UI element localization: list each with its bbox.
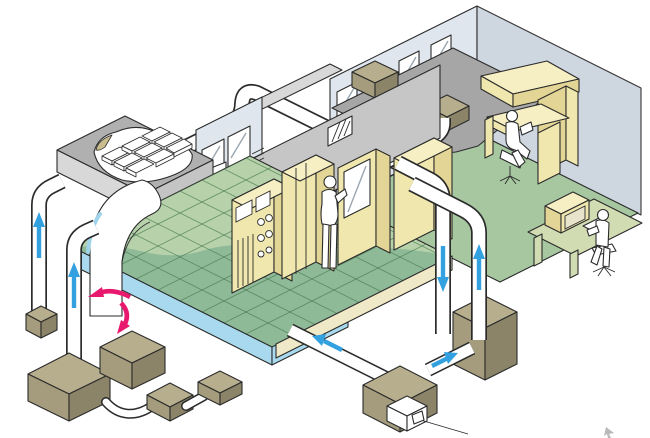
desk-leg-panel [485, 116, 493, 158]
cursor-artifact [604, 427, 614, 438]
operator-leg [603, 247, 610, 267]
control-desk-leg [534, 234, 542, 266]
pump-unit-small [26, 306, 57, 338]
standing-worker-head [324, 176, 336, 188]
standing-worker-leg [330, 224, 337, 268]
operator-body [596, 220, 609, 247]
seated-worker-head [507, 111, 518, 122]
pump-unit-large [28, 353, 110, 421]
standing-worker-leg [322, 224, 329, 268]
facility-isometric-illustration: Isometric cutaway illustration of a swim… [0, 0, 650, 438]
connector-pipe-1 [106, 402, 152, 414]
pool-riser-duct-1 [39, 181, 62, 318]
control-desk-leg [570, 250, 578, 278]
operator-head [598, 210, 609, 221]
illustration-stage: Isometric cutaway illustration of a swim… [0, 0, 650, 438]
plant-room-door [338, 149, 390, 265]
standing-worker-body [321, 190, 338, 227]
desk-return-panel [538, 122, 560, 184]
